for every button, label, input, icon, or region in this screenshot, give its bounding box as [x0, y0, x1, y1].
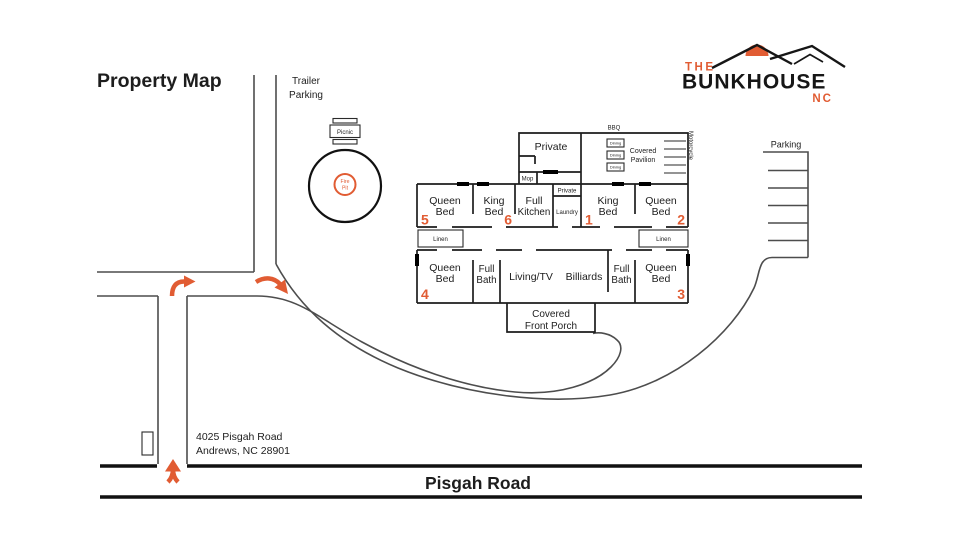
room-label: Bath: [476, 275, 496, 286]
fire-pit-line2: Pit: [342, 186, 349, 192]
room-king-6: King Bed 6: [483, 195, 512, 228]
room-queen-3: Queen Bed 3: [645, 262, 685, 302]
picnic-table: Picnic: [330, 119, 360, 145]
room-label: Bed: [485, 206, 504, 218]
room-billiards: Billiards: [566, 271, 603, 283]
room-label: Billiards: [566, 271, 603, 283]
address-block: 4025 Pisgah Road Andrews, NC 28901: [196, 431, 290, 457]
pisgah-road: Pisgah Road: [100, 466, 862, 497]
room-full-kitchen: Full Kitchen: [518, 195, 551, 218]
arrow-shaft: [172, 282, 184, 297]
room-label: Full: [479, 264, 495, 275]
dining-label: Dining: [610, 153, 621, 158]
room-label: Bed: [436, 206, 455, 218]
logo-mountain-icon: [794, 55, 823, 65]
porch-line2: Front Porch: [525, 321, 577, 332]
room-queen-5: Queen Bed 5: [421, 195, 461, 228]
fire-pit: Fire Pit: [309, 150, 381, 222]
room-label: Kitchen: [518, 207, 551, 218]
bbq-label: BBQ: [608, 126, 621, 132]
room-number: 1: [585, 212, 593, 228]
property-map-svg: Property Map THE BUNKHOUSE NC Parking: [0, 0, 960, 540]
room-full-bath-left: Full Bath: [476, 264, 496, 286]
room-label: Laundry: [556, 210, 578, 216]
picnic-bench: [333, 119, 357, 124]
fire-pit-line1: Fire: [341, 179, 350, 185]
dining-label: Dining: [610, 165, 621, 170]
arrow-head: [165, 459, 181, 472]
private-upper-label: Private: [535, 141, 568, 153]
linen-closet-right: Linen: [639, 230, 688, 247]
room-label: Private: [558, 189, 577, 195]
room-private-small: Private: [558, 189, 577, 195]
room-king-1: King Bed 1: [585, 195, 619, 228]
page-title: Property Map: [97, 70, 222, 92]
mop-label: Mop: [522, 177, 534, 183]
linen-label: Linen: [433, 237, 448, 243]
trailer-parking-line1: Trailer: [292, 76, 321, 87]
room-label: Full: [614, 264, 630, 275]
room-label: Bed: [652, 206, 671, 218]
linen-closet-left: Linen: [418, 230, 463, 247]
curve-right-arrow-icon: [256, 278, 288, 294]
room-number: 2: [677, 212, 685, 228]
room-queen-4: Queen Bed 4: [421, 262, 461, 302]
dining-tables: Dining Dining Dining: [607, 139, 624, 171]
logo-name: BUNKHOUSE: [682, 71, 826, 94]
room-laundry: Laundry: [556, 210, 578, 216]
property-map-page: Property Map THE BUNKHOUSE NC Parking: [0, 0, 960, 540]
room-queen-2: Queen Bed 2: [645, 195, 685, 228]
parking-label: Parking: [771, 140, 802, 150]
arrow-head: [184, 276, 196, 288]
address-line1: 4025 Pisgah Road: [196, 431, 283, 443]
room-label: Bed: [436, 273, 455, 285]
trailer-parking-label: Trailer Parking: [289, 76, 323, 101]
pavilion-line1: Covered: [630, 148, 657, 155]
building-upper-block: BBQ Private Mop Dining Dining Dining Cov…: [519, 126, 693, 185]
picnic-label: Picnic: [337, 130, 353, 136]
room-number: 4: [421, 286, 429, 302]
linen-label: Linen: [656, 237, 671, 243]
building-main: Queen Bed 5 King Bed 6 Full Kitchen Priv…: [417, 184, 688, 332]
private-closet-wall: [519, 156, 535, 164]
address-line2: Andrews, NC 28901: [196, 445, 290, 457]
room-label: Living/TV: [509, 271, 553, 283]
room-number: 3: [677, 286, 685, 302]
room-label: Full: [526, 195, 543, 207]
room-living-tv: Living/TV: [509, 271, 553, 283]
pisgah-road-label: Pisgah Road: [425, 473, 531, 493]
room-label: Bed: [652, 273, 671, 285]
turn-right-arrow-icon: [172, 276, 196, 297]
room-number: 6: [504, 212, 512, 228]
room-label: Bed: [599, 206, 618, 218]
covered-front-porch: Covered Front Porch: [507, 303, 595, 332]
picnic-bench: [333, 140, 357, 145]
trailer-parking-line2: Parking: [289, 90, 323, 101]
logo-nc: NC: [812, 93, 833, 105]
motorcycle-label: Motorcycle: [687, 131, 693, 161]
entrance-up-arrow-icon: [165, 459, 181, 482]
dining-label: Dining: [610, 141, 621, 146]
arrow-shaft: [256, 278, 280, 284]
pavilion-line2: Pavilion: [631, 157, 656, 164]
room-label: Bath: [611, 275, 631, 286]
porch-line1: Covered: [532, 309, 570, 320]
room-number: 5: [421, 212, 429, 228]
roadside-marker: [142, 432, 153, 455]
room-full-bath-right: Full Bath: [611, 264, 631, 286]
bunkhouse-logo: THE BUNKHOUSE NC: [682, 45, 845, 105]
parking-area: Parking: [763, 140, 808, 258]
